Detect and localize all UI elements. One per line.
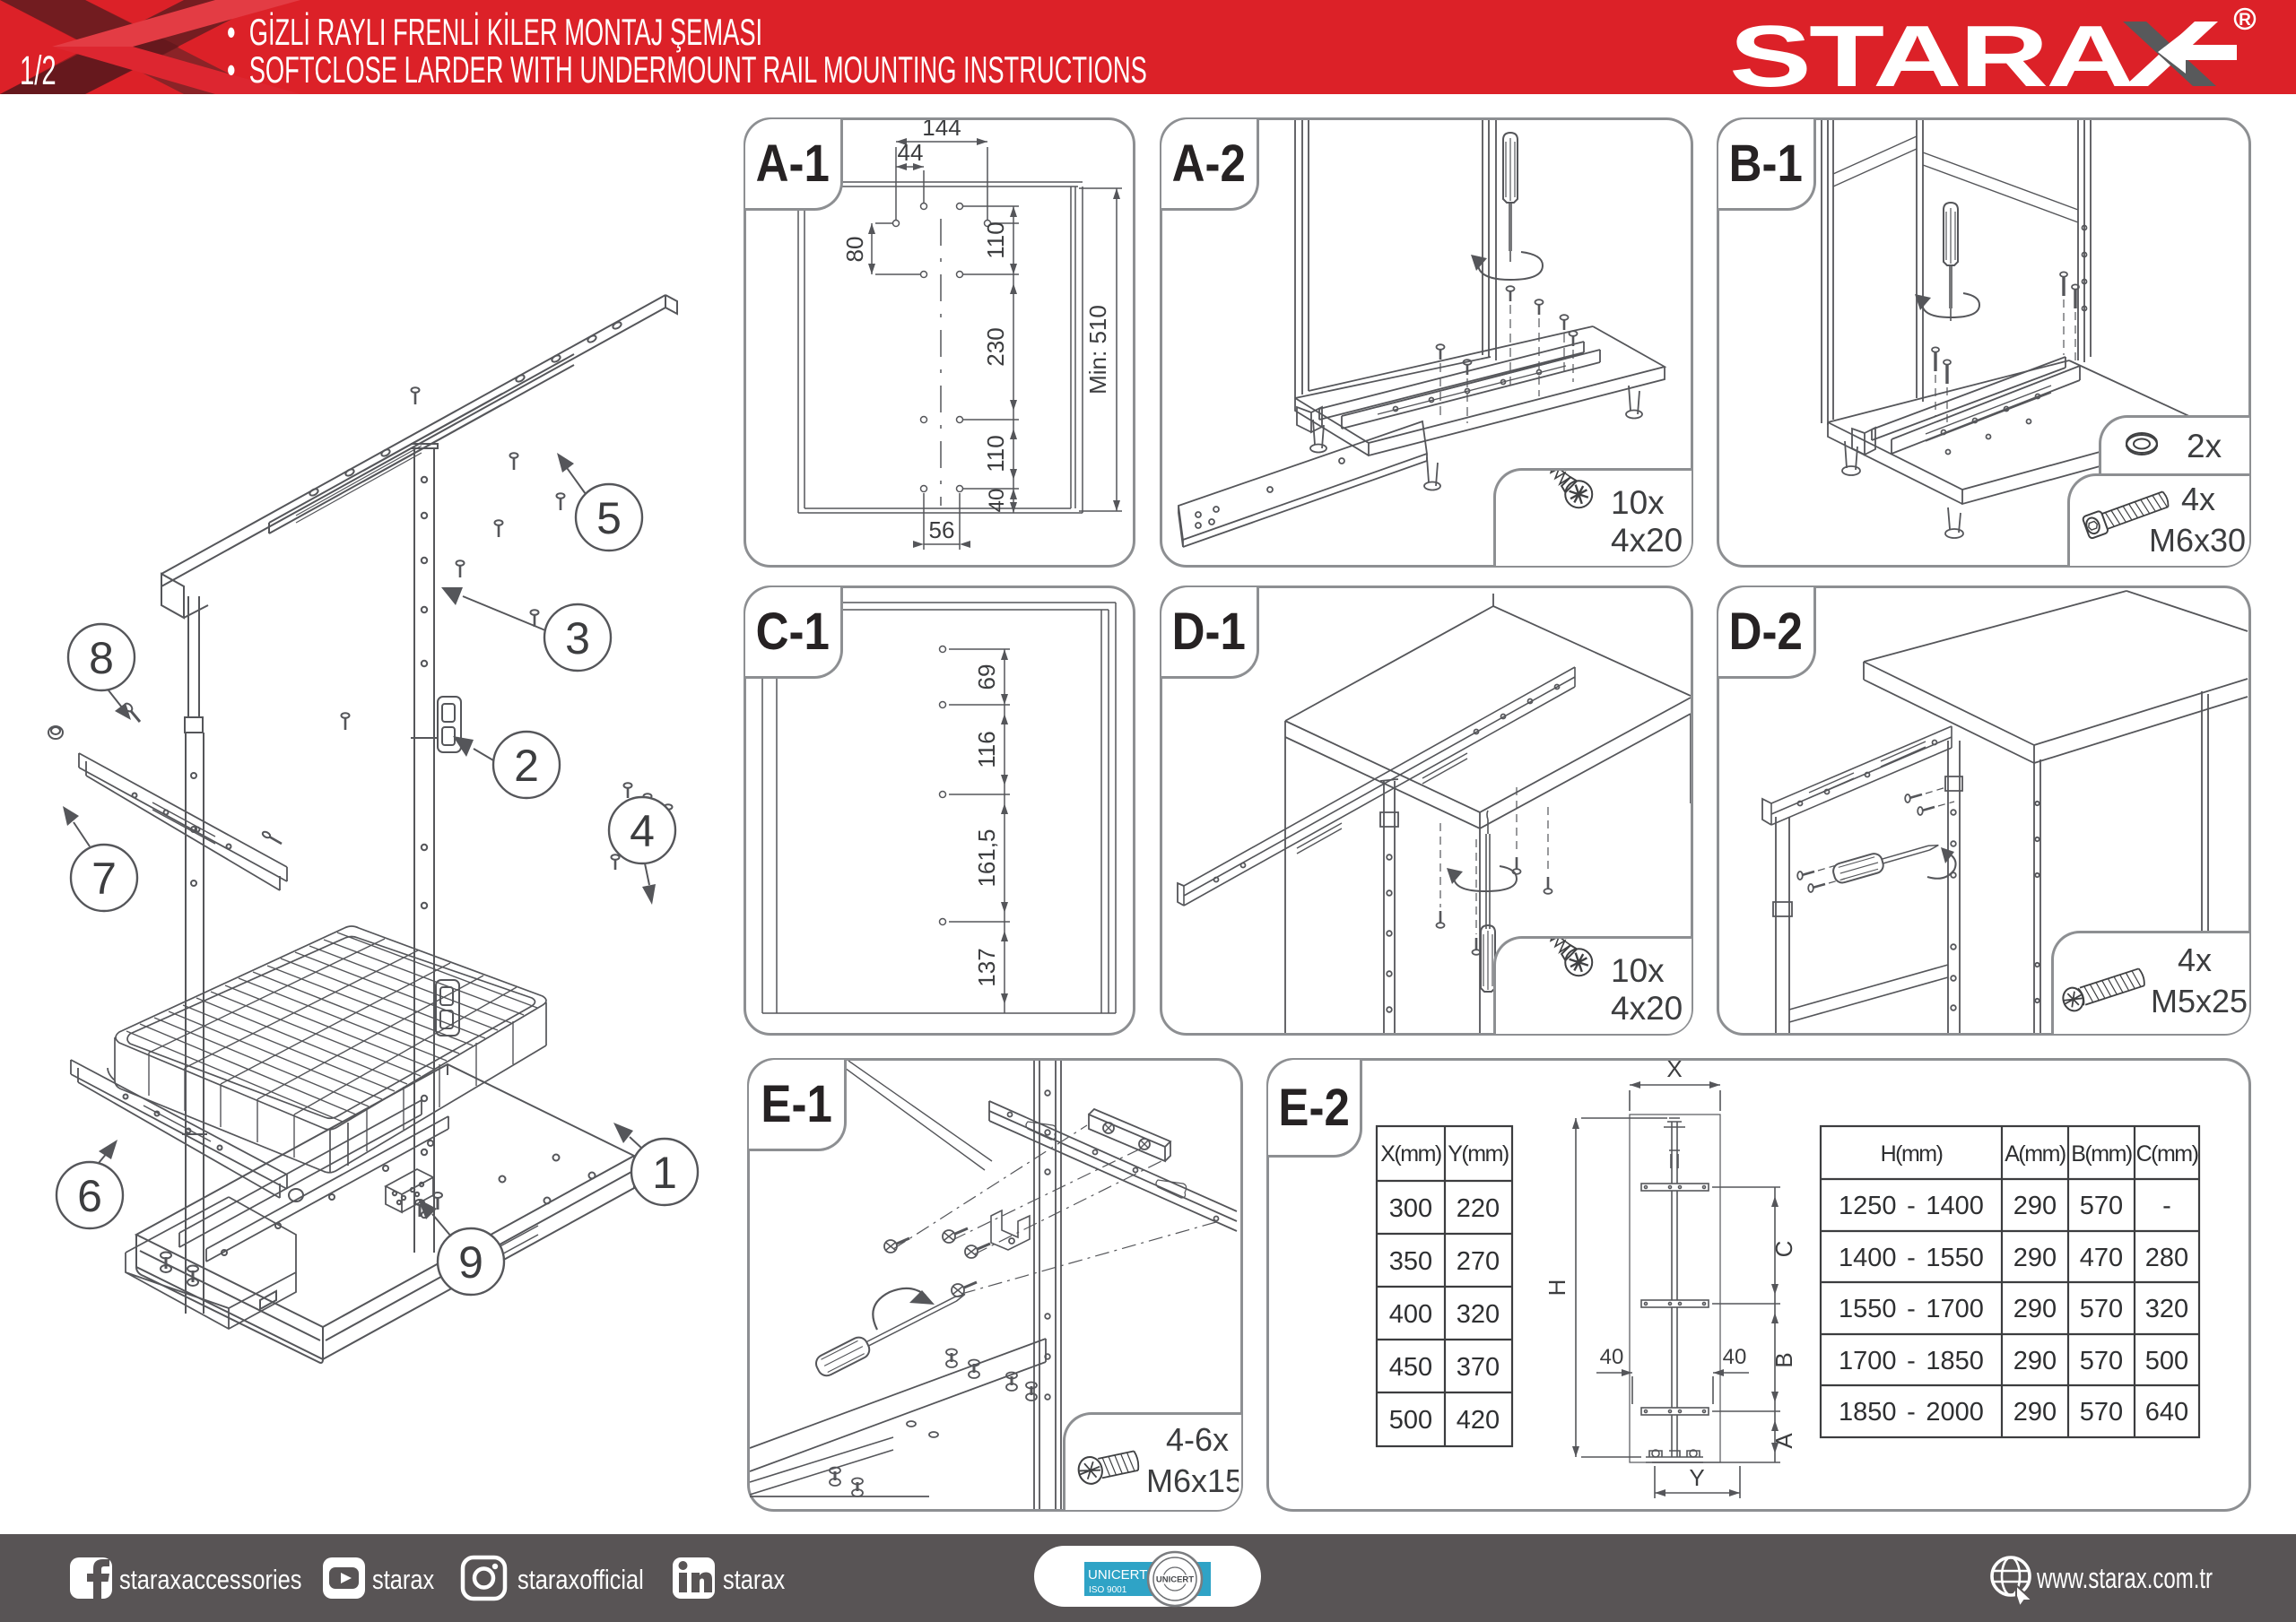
svg-text:2: 2 <box>514 741 539 791</box>
svg-text:56: 56 <box>929 516 955 543</box>
svg-text:4x: 4x <box>2181 481 2215 517</box>
svg-text:7: 7 <box>91 854 117 904</box>
svg-text:570: 570 <box>2080 1192 2123 1220</box>
svg-text:M6x15: M6x15 <box>1146 1462 1239 1499</box>
svg-text:2x: 2x <box>2187 428 2222 464</box>
svg-text:UNICERT: UNICERT <box>1088 1567 1147 1583</box>
svg-text:570: 570 <box>2080 1398 2123 1427</box>
svg-text:144: 144 <box>922 120 961 141</box>
svg-text:4x20: 4x20 <box>1611 522 1683 559</box>
svg-text:44: 44 <box>898 139 924 166</box>
svg-text:1700 - 1850: 1700 - 1850 <box>1839 1347 1984 1375</box>
svg-text:UNICERT: UNICERT <box>1156 1575 1194 1585</box>
svg-text:290: 290 <box>2013 1347 2057 1375</box>
svg-text:3: 3 <box>565 613 590 664</box>
svg-text:5: 5 <box>596 493 622 543</box>
svg-text:A: A <box>1770 1433 1797 1449</box>
svg-text:320: 320 <box>1457 1300 1500 1329</box>
svg-text:110: 110 <box>982 221 1009 258</box>
svg-text:40: 40 <box>985 489 1009 513</box>
svg-text:1400 - 1550: 1400 - 1550 <box>1839 1244 1984 1272</box>
svg-text:290: 290 <box>2013 1192 2057 1220</box>
svg-text:280: 280 <box>2145 1244 2188 1272</box>
svg-text:10x: 10x <box>1611 484 1665 521</box>
svg-text:C: C <box>1770 1241 1797 1258</box>
svg-text:H(mm): H(mm) <box>1881 1141 1943 1167</box>
svg-text:220: 220 <box>1457 1194 1500 1223</box>
svg-text:500: 500 <box>2145 1347 2188 1375</box>
svg-text:640: 640 <box>2145 1398 2188 1427</box>
svg-text:400: 400 <box>1389 1300 1432 1329</box>
svg-text:290: 290 <box>2013 1398 2057 1427</box>
svg-text:1850 - 2000: 1850 - 2000 <box>1839 1398 1984 1427</box>
svg-text:300: 300 <box>1389 1194 1432 1223</box>
svg-text:350: 350 <box>1389 1247 1432 1276</box>
svg-text:A(mm): A(mm) <box>2005 1141 2066 1167</box>
svg-text:4x20: 4x20 <box>1611 990 1683 1027</box>
svg-text:137: 137 <box>973 948 1000 986</box>
svg-text:9: 9 <box>458 1237 483 1288</box>
svg-text:40: 40 <box>1600 1345 1624 1369</box>
svg-text:500: 500 <box>1389 1406 1432 1435</box>
svg-text:230: 230 <box>982 327 1009 366</box>
svg-text:6: 6 <box>77 1171 102 1221</box>
svg-text:B(mm): B(mm) <box>2071 1141 2132 1167</box>
svg-text:Min: 510: Min: 510 <box>1084 305 1111 395</box>
svg-text:270: 270 <box>1457 1247 1500 1276</box>
svg-text:570: 570 <box>2080 1347 2123 1375</box>
svg-text:1250 - 1400: 1250 - 1400 <box>1839 1192 1984 1220</box>
svg-text:1: 1 <box>652 1148 677 1198</box>
svg-text:420: 420 <box>1457 1406 1500 1435</box>
svg-text:Y(mm): Y(mm) <box>1448 1141 1509 1167</box>
svg-text:H: H <box>1544 1279 1570 1297</box>
svg-text:C(mm): C(mm) <box>2136 1141 2198 1167</box>
svg-text:10x: 10x <box>1611 952 1665 989</box>
svg-text:69: 69 <box>973 664 1000 690</box>
svg-text:M6x30: M6x30 <box>2149 522 2246 559</box>
svg-text:Y: Y <box>1689 1464 1704 1491</box>
svg-text:320: 320 <box>2145 1295 2188 1323</box>
svg-text:40: 40 <box>1723 1345 1747 1369</box>
svg-text:8: 8 <box>89 633 114 683</box>
svg-text:370: 370 <box>1457 1353 1500 1382</box>
svg-text:290: 290 <box>2013 1244 2057 1272</box>
svg-text:110: 110 <box>982 435 1009 472</box>
svg-text:STARA: STARA <box>1729 8 2133 94</box>
svg-text:X(mm): X(mm) <box>1380 1141 1441 1167</box>
svg-text:ISO 9001: ISO 9001 <box>1089 1585 1127 1595</box>
svg-text:4: 4 <box>630 806 655 856</box>
svg-text:X: X <box>1666 1061 1682 1082</box>
svg-text:R: R <box>2239 11 2251 30</box>
svg-text:290: 290 <box>2013 1295 2057 1323</box>
svg-text:B: B <box>1770 1352 1797 1367</box>
svg-text:570: 570 <box>2080 1295 2123 1323</box>
svg-text:161,5: 161,5 <box>973 828 1000 887</box>
svg-text:4x: 4x <box>2178 941 2212 978</box>
svg-text:1550 - 1700: 1550 - 1700 <box>1839 1295 1984 1323</box>
svg-text:116: 116 <box>973 731 1000 768</box>
svg-text:-: - <box>2162 1192 2171 1220</box>
svg-text:M5x25: M5x25 <box>2151 983 2247 1019</box>
svg-text:80: 80 <box>841 237 868 263</box>
svg-text:470: 470 <box>2080 1244 2123 1272</box>
svg-text:4-6x: 4-6x <box>1166 1421 1229 1458</box>
svg-text:450: 450 <box>1389 1353 1432 1382</box>
